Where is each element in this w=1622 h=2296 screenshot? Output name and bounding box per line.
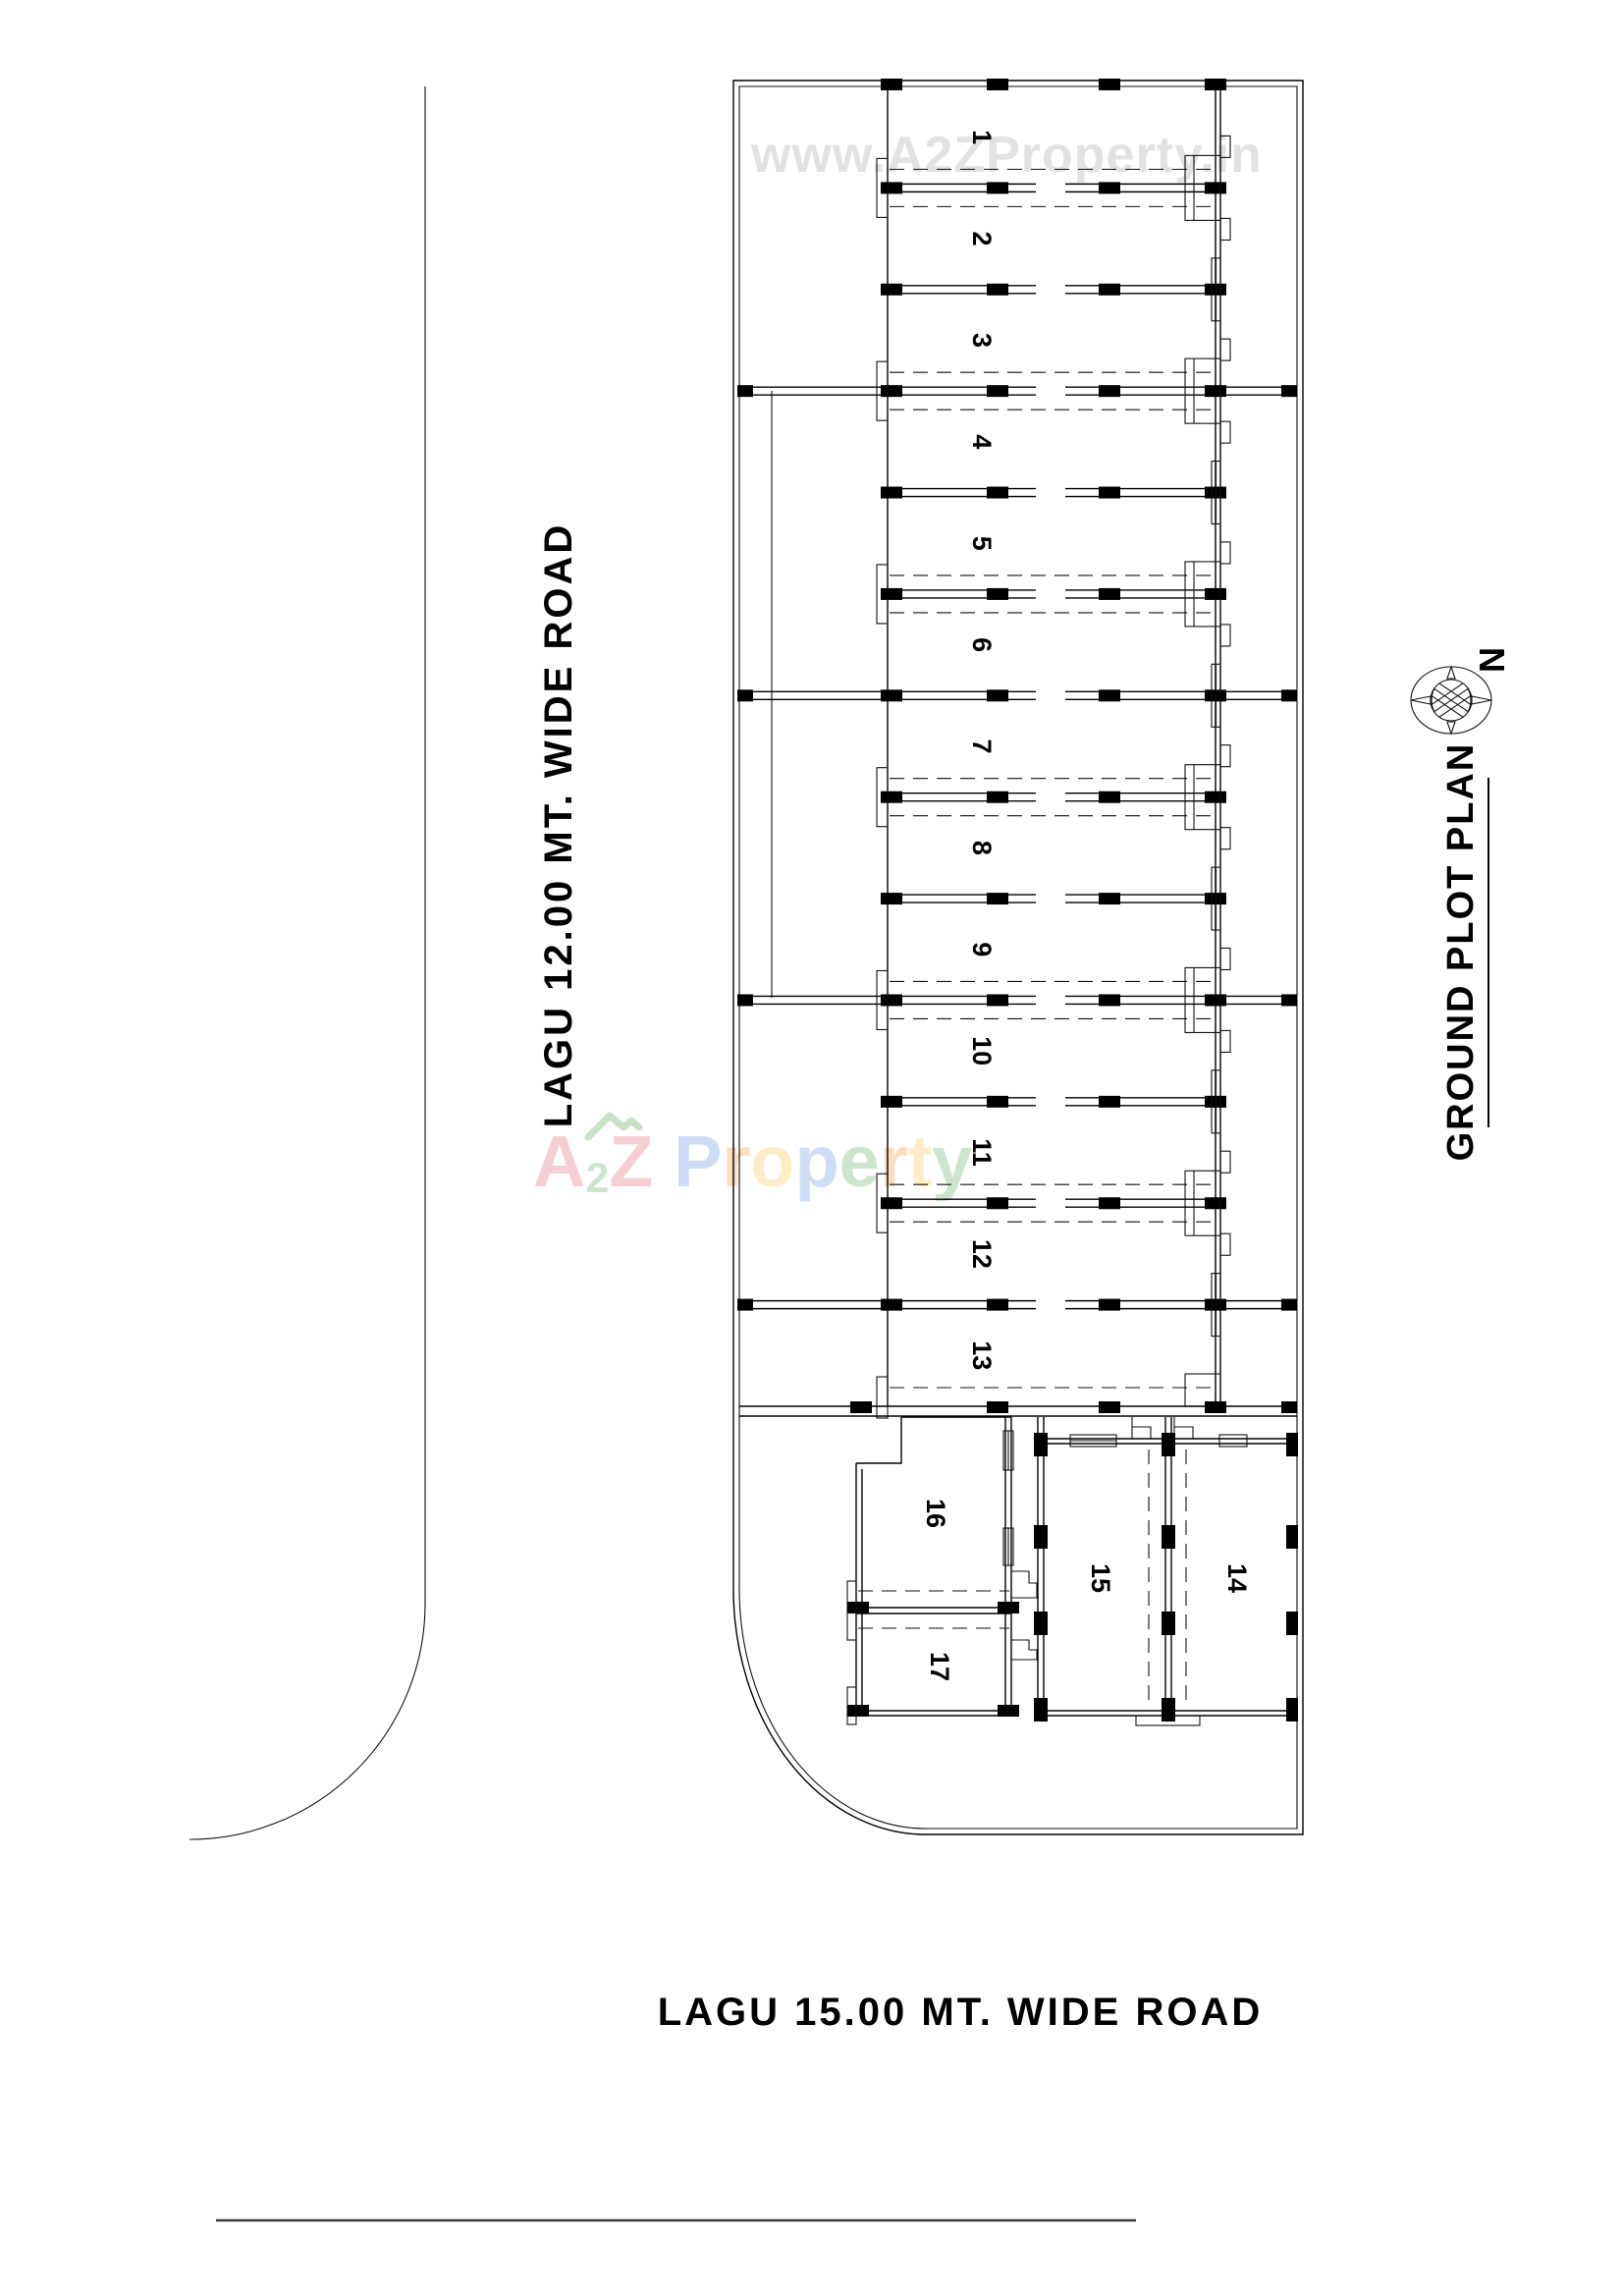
column bbox=[881, 284, 902, 296]
partition-wall bbox=[1065, 793, 1216, 801]
column bbox=[1205, 182, 1226, 193]
partition-wall bbox=[1065, 590, 1216, 598]
column bbox=[1281, 1299, 1297, 1311]
partition-wall bbox=[888, 286, 1036, 294]
column bbox=[881, 588, 902, 600]
door-leaf bbox=[1220, 136, 1230, 157]
column bbox=[987, 284, 1008, 296]
partition-wall bbox=[888, 184, 1036, 191]
main-building-block bbox=[737, 79, 1297, 1418]
column bbox=[1205, 588, 1226, 600]
unit-label: 3 bbox=[967, 333, 997, 348]
partition-wall bbox=[888, 691, 1036, 699]
road-curb-line bbox=[189, 86, 425, 1839]
column bbox=[1099, 792, 1120, 803]
partition-wall bbox=[1065, 387, 1216, 395]
ground-plot-plan-drawing: 12345678910111213 bbox=[0, 0, 1622, 2296]
column bbox=[881, 689, 902, 701]
door-leaf bbox=[1220, 421, 1230, 443]
column bbox=[881, 79, 902, 90]
unit-label: 9 bbox=[967, 942, 997, 957]
dashed-line bbox=[890, 1184, 1214, 1222]
column bbox=[881, 1197, 902, 1209]
door-leaf bbox=[1220, 948, 1230, 969]
unit-label: 14 bbox=[1222, 1563, 1252, 1593]
unit-label: 10 bbox=[967, 1036, 997, 1066]
partition-wall bbox=[739, 1301, 888, 1309]
column bbox=[881, 893, 902, 904]
column bbox=[1205, 1197, 1226, 1209]
column bbox=[987, 994, 1008, 1006]
column bbox=[1281, 689, 1297, 701]
column bbox=[1099, 79, 1120, 90]
column bbox=[737, 1299, 753, 1311]
partition-wall bbox=[888, 590, 1036, 598]
plot-boundary-inner bbox=[739, 86, 1297, 1829]
partition-wall bbox=[1065, 1301, 1216, 1309]
column bbox=[987, 487, 1008, 499]
unit-label: 5 bbox=[967, 536, 997, 551]
drawing-title: GROUND PLOT PLAN bbox=[1440, 742, 1482, 1162]
door-leaf bbox=[1220, 339, 1230, 360]
column bbox=[1205, 79, 1226, 90]
partition-wall bbox=[739, 996, 888, 1004]
partition-wall bbox=[888, 489, 1036, 497]
column bbox=[881, 1096, 902, 1108]
left-tab bbox=[877, 1377, 888, 1418]
column bbox=[737, 689, 753, 701]
partition-wall bbox=[888, 996, 1036, 1004]
column bbox=[987, 1197, 1008, 1209]
column bbox=[1205, 994, 1226, 1006]
column bbox=[1099, 1299, 1120, 1311]
column bbox=[987, 1299, 1008, 1311]
column bbox=[1099, 588, 1120, 600]
column bbox=[987, 689, 1008, 701]
partition-wall bbox=[888, 387, 1036, 395]
column bbox=[1099, 385, 1120, 397]
column bbox=[881, 487, 902, 499]
column bbox=[1099, 994, 1120, 1006]
column bbox=[1205, 792, 1226, 803]
dashed-line bbox=[890, 981, 1214, 1018]
column bbox=[987, 792, 1008, 803]
column bbox=[987, 1096, 1008, 1108]
column bbox=[737, 385, 753, 397]
column bbox=[881, 385, 902, 397]
column bbox=[1099, 689, 1120, 701]
north-label: N bbox=[1472, 647, 1512, 673]
door-leaf bbox=[1220, 745, 1230, 767]
dashed-line bbox=[890, 372, 1214, 410]
unit-label: 6 bbox=[967, 637, 997, 652]
unit-label: 7 bbox=[967, 738, 997, 753]
partition-wall bbox=[1065, 489, 1216, 497]
column bbox=[1099, 1096, 1120, 1108]
door-leaf bbox=[1220, 218, 1230, 240]
column bbox=[1099, 893, 1120, 904]
column bbox=[881, 182, 902, 193]
unit-label: 16 bbox=[921, 1499, 950, 1528]
door-leaf bbox=[1220, 1030, 1230, 1052]
column bbox=[1099, 1197, 1120, 1209]
partition-wall bbox=[1065, 1098, 1216, 1106]
partition-wall bbox=[888, 895, 1036, 902]
partition-wall bbox=[1065, 996, 1216, 1004]
column bbox=[987, 79, 1008, 90]
partition-wall bbox=[739, 691, 888, 699]
partition-wall bbox=[1065, 691, 1216, 699]
road-bottom-label: LAGU 15.00 MT. WIDE ROAD bbox=[658, 1991, 1264, 2034]
unit-label: 2 bbox=[967, 232, 997, 246]
partition-wall bbox=[888, 793, 1036, 801]
partition-wall bbox=[888, 1199, 1036, 1207]
lower-unit-labels: 14151617 bbox=[921, 1499, 1252, 1681]
unit-label: 4 bbox=[967, 434, 997, 449]
column bbox=[987, 182, 1008, 193]
column bbox=[881, 792, 902, 803]
partition-wall bbox=[888, 1301, 1036, 1309]
door-leaf bbox=[1220, 828, 1230, 849]
partition-wall bbox=[739, 387, 888, 395]
column bbox=[881, 1299, 902, 1311]
road-left-label: LAGU 12.00 MT. WIDE ROAD bbox=[537, 522, 580, 1128]
unit-label: 12 bbox=[967, 1239, 997, 1269]
plot-plan-page: www.A2ZProperty.in A2Z Property 12345678… bbox=[0, 0, 1622, 2296]
north-compass-icon bbox=[1411, 667, 1491, 734]
partition-wall bbox=[1065, 184, 1216, 191]
column bbox=[987, 893, 1008, 904]
dashed-line bbox=[890, 575, 1214, 613]
door-leaf bbox=[1220, 542, 1230, 564]
lower-units-block bbox=[739, 1401, 1298, 1725]
door-leaf bbox=[1220, 625, 1230, 646]
unit-label: 17 bbox=[925, 1652, 954, 1681]
partition-wall bbox=[1065, 1199, 1216, 1207]
partition-wall bbox=[1065, 286, 1216, 294]
column bbox=[1099, 182, 1120, 193]
column bbox=[737, 994, 753, 1006]
dashed-line bbox=[890, 169, 1214, 206]
column bbox=[1099, 284, 1120, 296]
column bbox=[1281, 994, 1297, 1006]
unit-label: 1 bbox=[967, 130, 997, 144]
column bbox=[1205, 385, 1226, 397]
column bbox=[881, 994, 902, 1006]
unit-label: 13 bbox=[967, 1340, 997, 1370]
door-leaf bbox=[1220, 1233, 1230, 1255]
dashed-line bbox=[890, 779, 1214, 816]
column bbox=[987, 588, 1008, 600]
unit-label: 11 bbox=[967, 1138, 997, 1167]
unit-label: 8 bbox=[967, 841, 997, 855]
column bbox=[1099, 487, 1120, 499]
door-leaf bbox=[1220, 1151, 1230, 1173]
column bbox=[987, 385, 1008, 397]
unit-label: 15 bbox=[1086, 1563, 1115, 1593]
partition-wall bbox=[888, 1098, 1036, 1106]
column bbox=[1281, 385, 1297, 397]
partition-wall bbox=[1065, 895, 1216, 902]
